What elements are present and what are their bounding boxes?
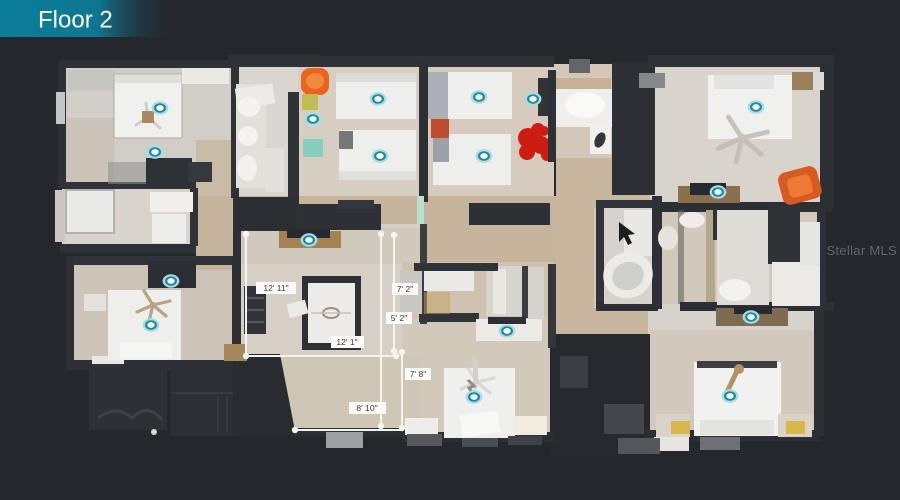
svg-text:Floor 2: Floor 2 bbox=[38, 7, 113, 34]
svg-text:12' 1": 12' 1" bbox=[336, 337, 357, 347]
svg-text:7' 8": 7' 8" bbox=[410, 369, 426, 379]
svg-text:5' 2": 5' 2" bbox=[391, 313, 407, 323]
svg-text:8' 10": 8' 10" bbox=[356, 403, 377, 413]
svg-text:Stellar MLS: Stellar MLS bbox=[827, 243, 898, 258]
svg-text:12' 11": 12' 11" bbox=[263, 283, 288, 293]
svg-text:7' 2": 7' 2" bbox=[397, 284, 413, 294]
